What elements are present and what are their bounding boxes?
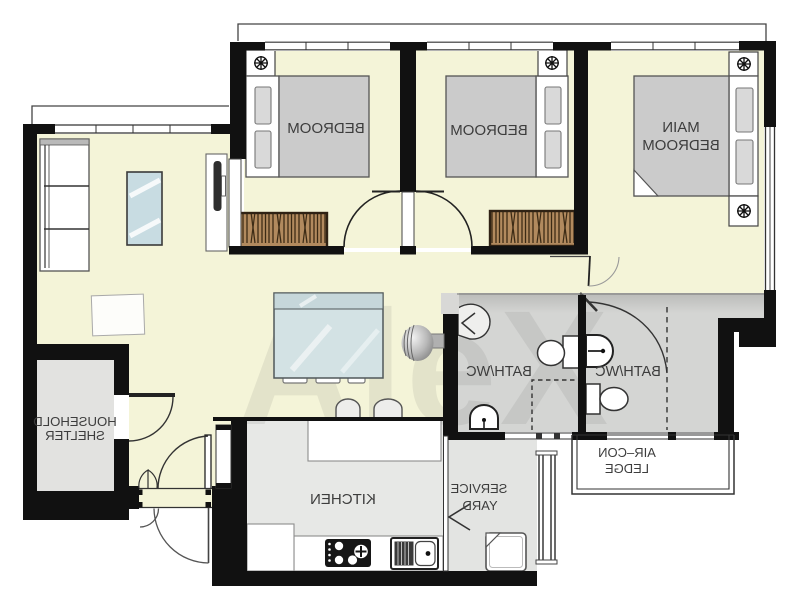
svg-text:BATH/WC: BATH/WC — [595, 364, 661, 380]
svg-text:SHELTER: SHELTER — [45, 428, 105, 443]
svg-text:KITCHEN: KITCHEN — [310, 491, 376, 508]
svg-text:BEDROOM: BEDROOM — [642, 137, 720, 154]
svg-text:BEDROOM: BEDROOM — [287, 120, 365, 137]
svg-text:LEDGE: LEDGE — [605, 461, 649, 476]
svg-text:MAIN: MAIN — [662, 119, 700, 136]
svg-text:BATH/WC: BATH/WC — [466, 364, 532, 380]
svg-text:BEDROOM: BEDROOM — [450, 122, 528, 139]
svg-text:YARD: YARD — [462, 498, 497, 513]
svg-text:SERVICE: SERVICE — [450, 481, 507, 496]
svg-text:AIR–CON: AIR–CON — [598, 445, 656, 460]
svg-text:HOUSEHOLD: HOUSEHOLD — [33, 414, 117, 429]
